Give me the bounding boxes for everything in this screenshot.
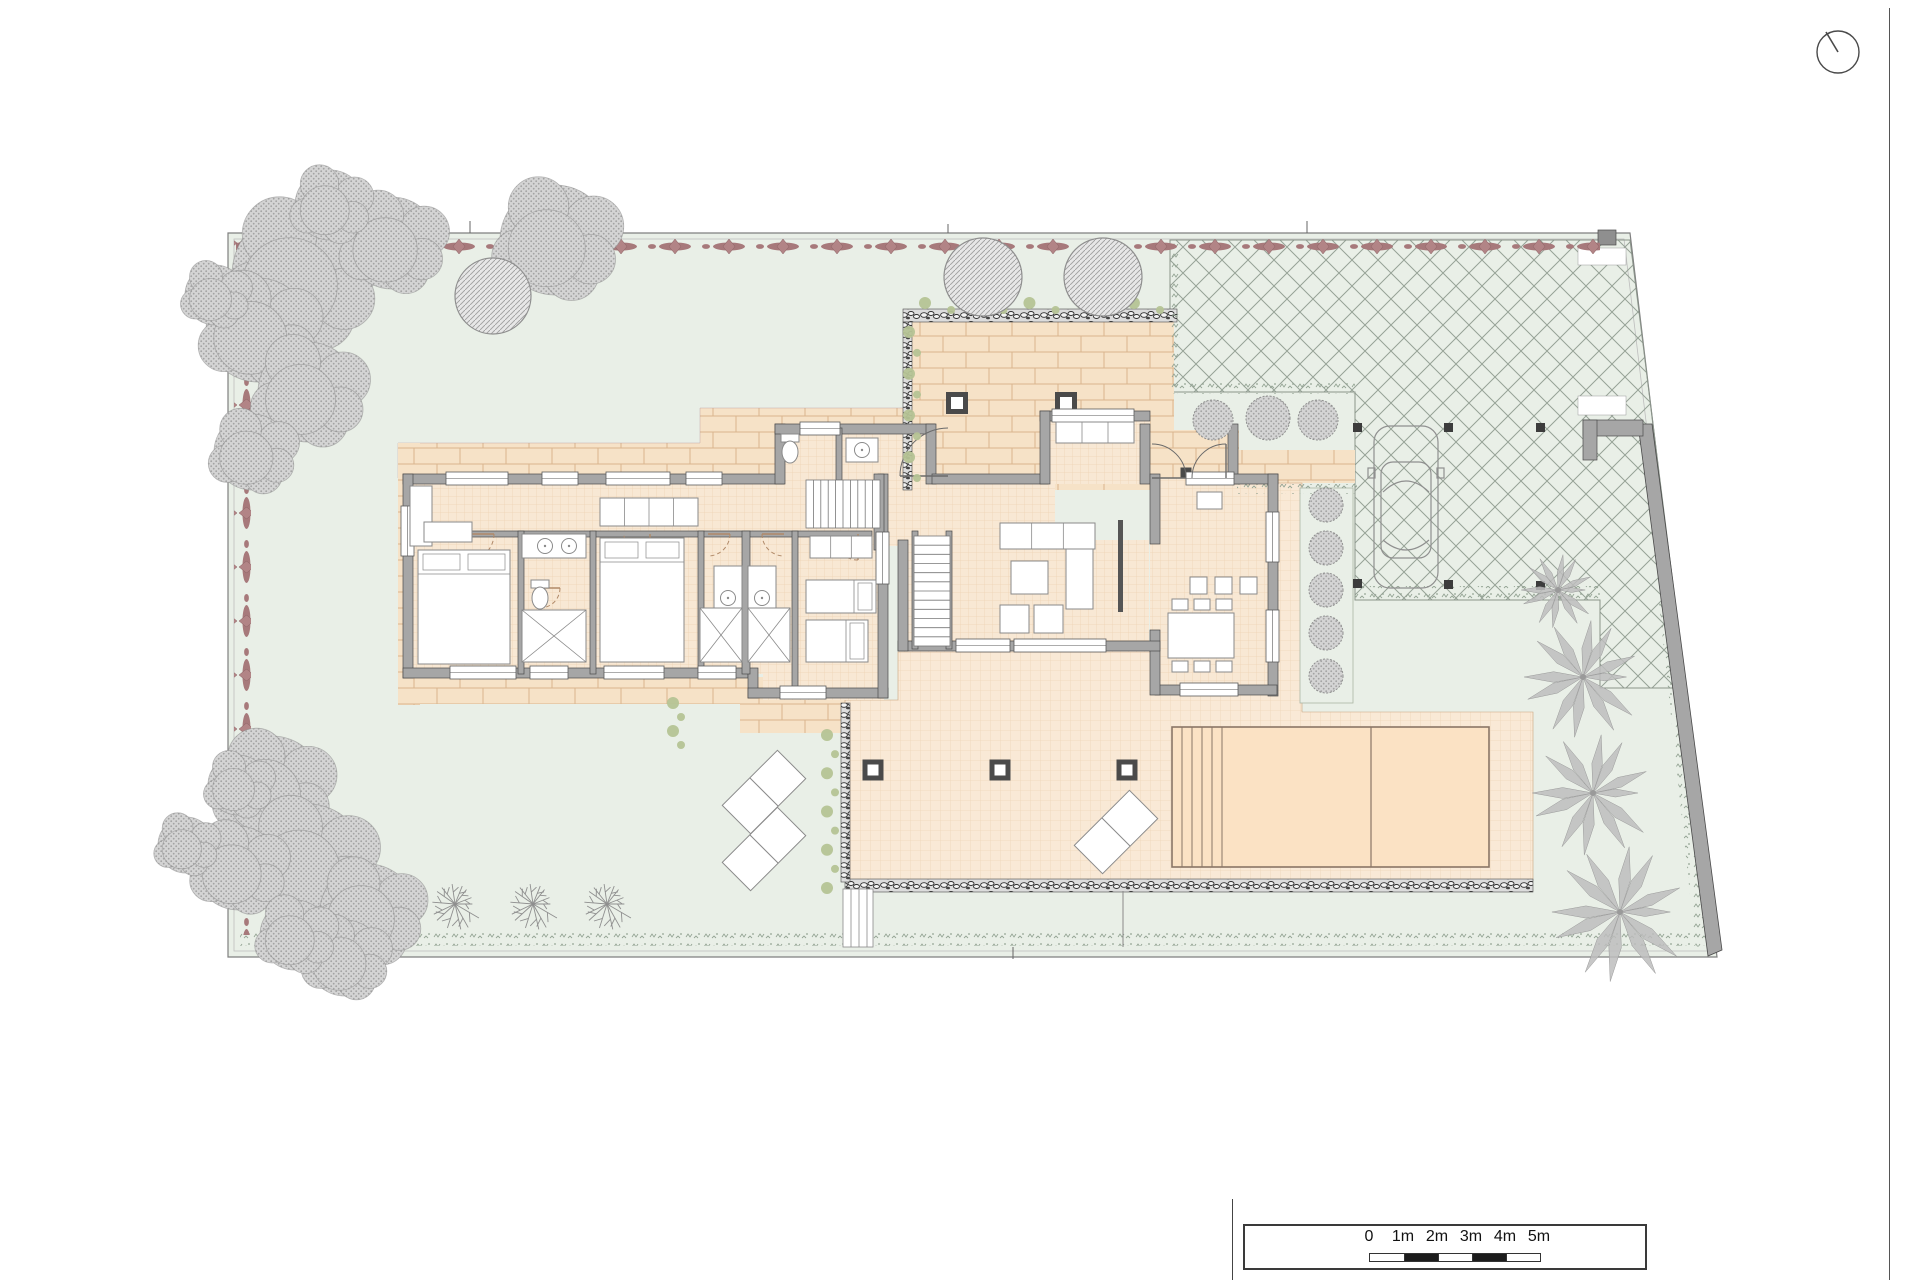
scale-seg [1506,1254,1540,1261]
furniture [1011,561,1048,594]
tree-canopy-lobe [220,431,273,484]
basin-drain [568,545,570,547]
stone-edge [903,322,912,490]
scale-seg [1370,1254,1404,1261]
palm-trunk [1555,587,1561,593]
wall [1040,411,1050,484]
titleblock-frame-line [1232,1199,1233,1280]
furniture [1172,661,1188,672]
furniture [1190,577,1207,594]
shrub-dot [1052,306,1060,314]
shrub-dot [821,844,833,856]
scale-label-4m: 4m [1494,1228,1516,1246]
shrub-dot [821,729,833,741]
wall [836,428,842,480]
hedge-strip [1168,242,1180,394]
shrub-dot [919,297,931,309]
palm-trunk [1590,790,1596,796]
hedge-strip [1173,383,1355,394]
shrub [1246,396,1290,440]
pillow [605,542,638,558]
round-tree [944,238,1022,316]
wall-corner [1583,420,1597,460]
furniture [1000,523,1095,549]
north-indicator [1812,26,1864,78]
furniture [424,522,472,542]
shrub-dot [667,697,679,709]
shrub-dot [831,750,839,758]
garden-steps [843,889,873,947]
furniture [1000,605,1029,633]
shrub-dot [831,865,839,873]
scale-label-0: 0 [1365,1228,1374,1246]
terrace-column-inner [868,765,879,776]
tv-wall [1118,520,1123,612]
shrub-dot [677,741,685,749]
tree-canopy-lobe [213,769,255,811]
tree-canopy-lobe [190,279,232,321]
furniture [810,536,872,558]
swimming-pool [1172,727,1489,867]
scale-seg [1404,1254,1438,1261]
shrub-dot [913,432,921,440]
gate-opening [1578,396,1626,415]
shrub-dot [821,882,833,894]
furniture [1168,613,1234,658]
wall [792,531,798,694]
floor-plan-page: 0 1m 2m 3m 4m 5m [0,0,1920,1280]
scale-label-1m: 1m [1392,1228,1414,1246]
furniture [1197,492,1222,509]
fence-post [1444,423,1453,432]
furniture [1216,599,1232,610]
terrace-column [863,760,884,781]
furniture [1240,577,1257,594]
basin-drain [861,449,863,451]
shrub-dot [913,474,921,482]
shrub [1309,659,1343,693]
wall [775,424,935,434]
tree-canopy-lobe [162,830,201,869]
shrub-dot [947,306,955,314]
furniture [1215,577,1232,594]
shrub-dot [903,326,915,338]
wall [932,474,1048,484]
pillow [423,554,460,570]
hedge-strip [1237,484,1357,494]
shrub-dot [913,349,921,357]
pillow [850,623,864,659]
shrub-dot [667,725,679,737]
furniture [1056,422,1134,443]
shrub-dot [903,409,915,421]
shrub-dot [831,788,839,796]
shrub-dot [1023,297,1035,309]
furniture [1194,599,1210,610]
wall [1140,424,1150,484]
palm-trunk [1617,909,1623,915]
scale-label-2m: 2m [1426,1228,1448,1246]
pergola-post-inner [951,397,963,409]
tree-canopy-lobe [300,186,349,235]
basin-drain [544,545,546,547]
wall [1268,474,1278,696]
toilet [782,441,798,463]
brick-paving [398,677,742,704]
shrub [1193,400,1233,440]
round-tree [1064,238,1142,316]
scale-seg [1438,1254,1472,1261]
furniture [1194,661,1210,672]
shrub [1309,531,1343,565]
stone-edge [841,703,850,882]
basin-drain [727,597,729,599]
fence-post [1353,423,1362,432]
wall [1150,630,1160,695]
terrace-column [1117,760,1138,781]
shrub-dot [913,391,921,399]
shrub [1309,573,1343,607]
stone-edge [903,309,1177,322]
basin-drain [761,597,763,599]
shrub-dot [903,451,915,463]
shrub-dot [831,827,839,835]
shrub-dot [903,368,915,380]
fence-post [1536,423,1545,432]
scale-label-5m: 5m [1528,1228,1550,1246]
scale-bar: 0 1m 2m 3m 4m 5m [1243,1224,1647,1270]
site-plan-drawing [0,0,1920,1280]
shrub-dot [677,713,685,721]
pergola-post-inner [1060,397,1072,409]
palm-trunk [1580,674,1586,680]
terrace-column [990,760,1011,781]
toilet [532,587,548,609]
terrace-column-inner [1122,765,1133,776]
house-floor [1150,478,1278,694]
shrub [1309,488,1343,522]
stone-edge [845,879,1533,892]
page-border-line [1889,8,1890,1280]
gate-post [1598,230,1616,245]
furniture [1216,661,1232,672]
pillow [468,554,505,570]
fence-post [1444,580,1453,589]
furniture [1172,599,1188,610]
wall [590,531,596,674]
north-needle [1826,32,1838,52]
hedge-strip [240,931,1695,946]
scale-label-3m: 3m [1460,1228,1482,1246]
furniture [1066,549,1093,609]
scale-bar-graphic [1369,1253,1541,1262]
wall [1150,474,1160,544]
shrub-dot [821,806,833,818]
shrub [1298,400,1338,440]
pillow [858,583,872,610]
wall [898,540,908,651]
terrace-column-inner [995,765,1006,776]
pillow [646,542,679,558]
shrub [1309,616,1343,650]
furniture [1034,605,1063,633]
shrub-dot [1156,306,1164,314]
pergola-post [946,392,968,414]
tree-canopy-lobe [265,916,314,965]
round-tree [455,258,531,334]
fence-post [1353,579,1362,588]
shrub-dot [821,767,833,779]
scale-seg [1472,1254,1506,1261]
